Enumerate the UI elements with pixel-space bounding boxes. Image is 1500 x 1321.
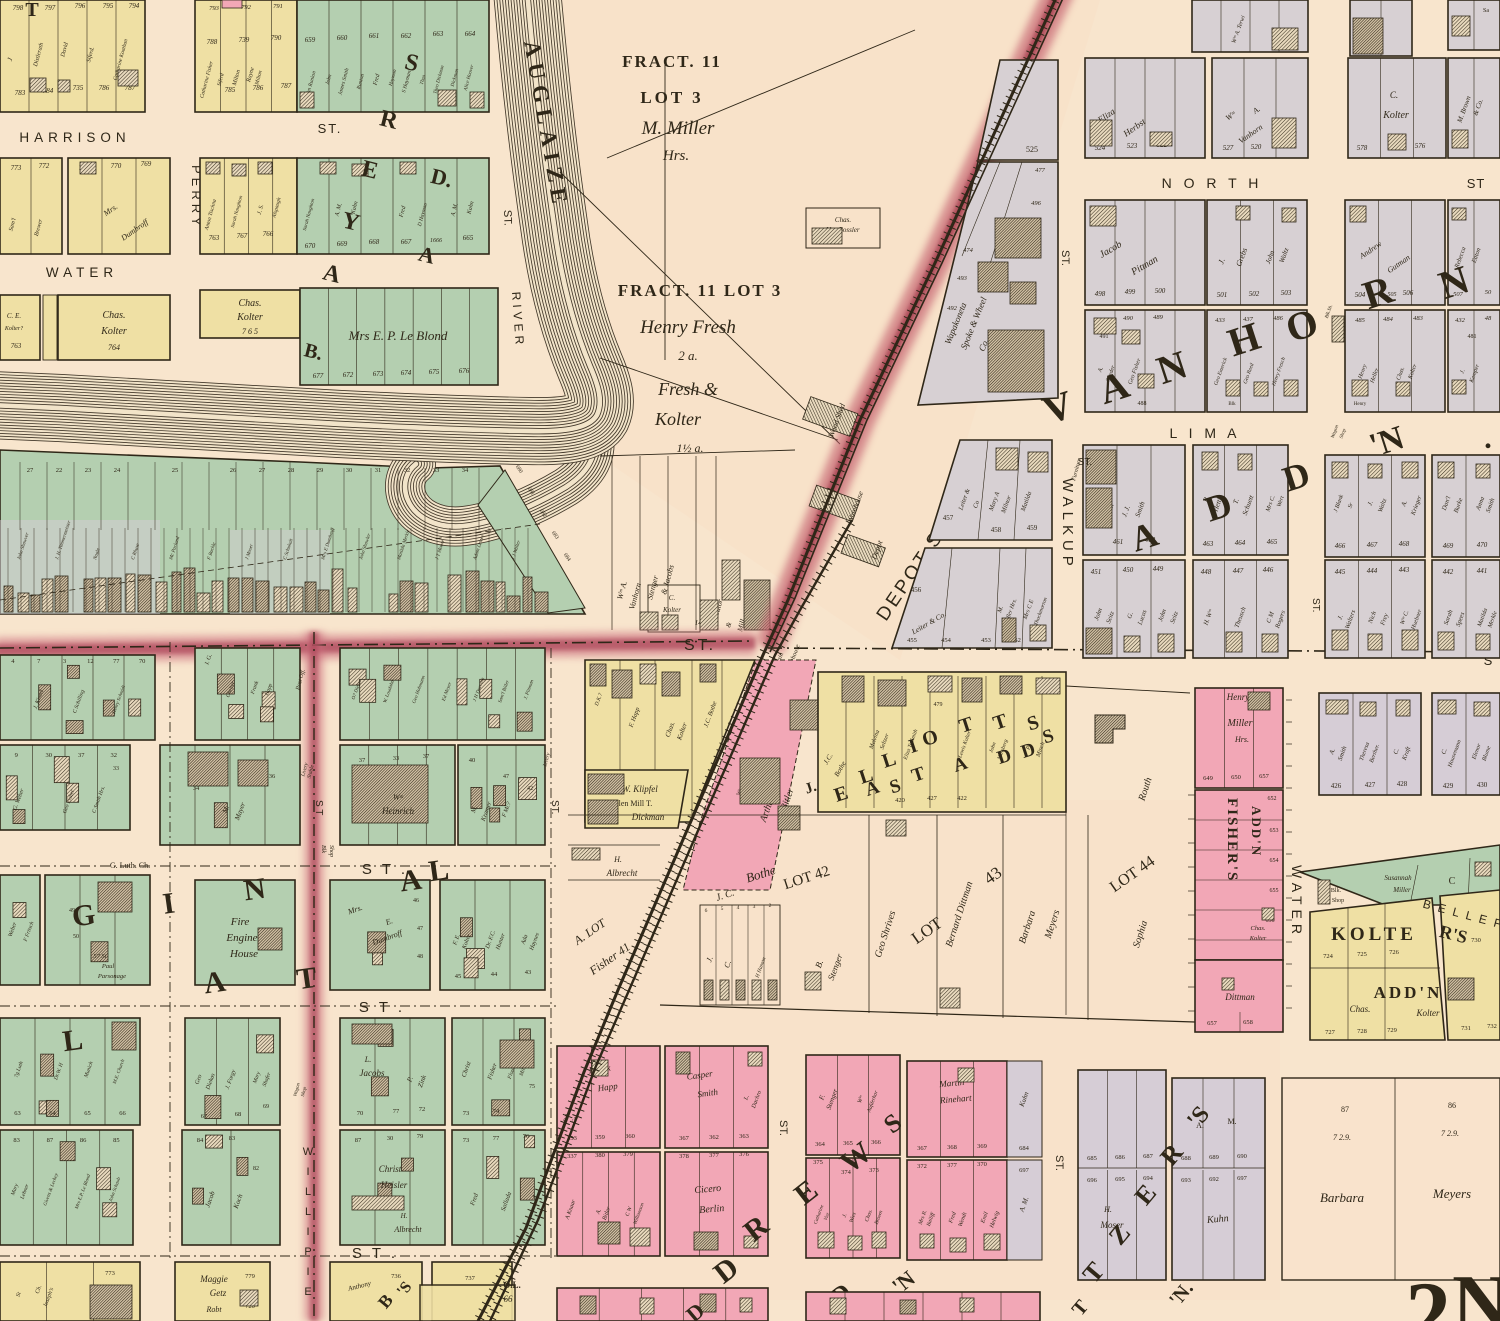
svg-text:Getz: Getz xyxy=(210,1288,227,1298)
svg-text:380: 380 xyxy=(595,1152,605,1159)
svg-text:484: 484 xyxy=(1383,316,1394,323)
svg-text:House: House xyxy=(229,948,258,960)
svg-text:36: 36 xyxy=(269,773,276,780)
svg-text:2: 2 xyxy=(1405,1263,1451,1321)
svg-text:Meyers: Meyers xyxy=(1432,1186,1471,1201)
svg-text:483: 483 xyxy=(1413,315,1424,322)
svg-text:Henry: Henry xyxy=(1354,402,1367,407)
svg-text:ST.: ST. xyxy=(501,210,514,226)
svg-text:24: 24 xyxy=(114,467,121,474)
svg-text:Kolter: Kolter xyxy=(654,409,702,429)
svg-text:454: 454 xyxy=(941,637,952,644)
svg-text:663: 663 xyxy=(433,30,444,38)
svg-text:Miller: Miller xyxy=(1392,886,1411,894)
svg-text:655: 655 xyxy=(1270,888,1279,894)
svg-text:Berlin: Berlin xyxy=(699,1203,725,1216)
svg-text:LOT 3: LOT 3 xyxy=(640,88,703,107)
svg-text:377: 377 xyxy=(947,1162,958,1169)
svg-text:KOLTE: KOLTE xyxy=(1331,924,1417,945)
svg-text:Kolter: Kolter xyxy=(1249,935,1267,942)
svg-text:40: 40 xyxy=(469,757,476,764)
svg-text:378: 378 xyxy=(679,1153,689,1160)
svg-text:46: 46 xyxy=(413,898,419,904)
svg-text:474: 474 xyxy=(963,247,974,254)
svg-text:785: 785 xyxy=(225,86,236,94)
svg-text:447: 447 xyxy=(1233,567,1244,575)
svg-text:Blk: Blk xyxy=(1228,402,1236,407)
svg-text:86: 86 xyxy=(80,1137,87,1144)
svg-text:793: 793 xyxy=(209,5,220,12)
svg-text:737: 737 xyxy=(465,1275,476,1282)
svg-text:697: 697 xyxy=(1019,1167,1030,1174)
svg-text:489: 489 xyxy=(1153,314,1164,321)
svg-text:37: 37 xyxy=(78,752,85,759)
svg-text:694: 694 xyxy=(1143,1175,1154,1182)
svg-text:M.: M. xyxy=(1227,1117,1236,1126)
svg-text:Kolter: Kolter xyxy=(1415,1008,1439,1018)
svg-text:6: 6 xyxy=(705,908,708,914)
svg-text:Fresh &: Fresh & xyxy=(657,379,718,399)
svg-text:Kolter: Kolter xyxy=(100,326,127,337)
svg-text:5: 5 xyxy=(721,906,724,912)
svg-text:726: 726 xyxy=(1389,949,1400,956)
svg-text:479: 479 xyxy=(934,702,943,708)
svg-text:Heinrich: Heinrich xyxy=(381,806,414,816)
svg-text:525: 525 xyxy=(1026,145,1038,154)
svg-text:ST.: ST. xyxy=(684,637,716,654)
svg-text:30: 30 xyxy=(346,467,353,474)
svg-text:.: . xyxy=(1484,422,1492,455)
svg-text:661: 661 xyxy=(369,32,380,40)
svg-text:450: 450 xyxy=(1123,566,1134,574)
svg-text:675: 675 xyxy=(429,368,440,376)
svg-text:S T: S T xyxy=(313,800,324,815)
svg-text:653: 653 xyxy=(1270,828,1279,834)
svg-text:7 2.9.: 7 2.9. xyxy=(1333,1133,1351,1142)
svg-text:65: 65 xyxy=(84,1110,91,1117)
svg-text:491: 491 xyxy=(1100,334,1109,340)
svg-text:N O R T H: N O R T H xyxy=(1162,175,1263,191)
svg-text:Chas.: Chas. xyxy=(1350,1004,1371,1014)
svg-text:461: 461 xyxy=(1113,538,1124,546)
svg-text:427: 427 xyxy=(1365,781,1376,789)
svg-text:467: 467 xyxy=(1367,541,1378,549)
svg-text:Kolter: Kolter xyxy=(1382,110,1409,121)
svg-text:660: 660 xyxy=(337,34,348,42)
svg-text:7 2.9.: 7 2.9. xyxy=(1441,1129,1459,1138)
svg-text:ST: ST xyxy=(1467,176,1486,191)
svg-text:576: 576 xyxy=(1415,142,1426,150)
svg-text:67: 67 xyxy=(201,1113,208,1120)
svg-text:33: 33 xyxy=(433,467,440,474)
svg-text:527: 527 xyxy=(1223,144,1234,152)
svg-text:696: 696 xyxy=(1087,1177,1098,1184)
svg-text:L.: L. xyxy=(364,1055,371,1064)
svg-text:493: 493 xyxy=(957,275,968,282)
svg-text:649: 649 xyxy=(1203,775,1213,782)
svg-text:Blk.: Blk. xyxy=(1331,888,1342,894)
svg-text:724: 724 xyxy=(1323,953,1334,960)
svg-text:727: 727 xyxy=(1325,1029,1336,1036)
svg-text:684: 684 xyxy=(1019,1145,1030,1152)
svg-text:481: 481 xyxy=(1468,334,1477,340)
svg-text:30: 30 xyxy=(46,752,53,759)
svg-text:Kuhn: Kuhn xyxy=(1206,1213,1230,1226)
svg-text:364: 364 xyxy=(815,1141,826,1148)
svg-text:74: 74 xyxy=(493,1108,500,1115)
svg-text:83: 83 xyxy=(229,1135,236,1142)
svg-text:453: 453 xyxy=(981,637,991,644)
svg-text:Susannah: Susannah xyxy=(1384,874,1412,882)
svg-text:47: 47 xyxy=(417,926,423,932)
svg-text:G. Luth. Ch.: G. Luth. Ch. xyxy=(110,861,150,870)
svg-text:730: 730 xyxy=(1471,937,1481,944)
svg-text:670: 670 xyxy=(305,242,316,250)
svg-text:772: 772 xyxy=(39,162,50,170)
svg-text:687: 687 xyxy=(1143,1153,1154,1160)
svg-text:496: 496 xyxy=(1031,200,1042,207)
svg-text:77: 77 xyxy=(393,1108,400,1115)
svg-text:787: 787 xyxy=(281,82,292,90)
svg-text:442: 442 xyxy=(1443,568,1454,576)
svg-text:E: E xyxy=(304,1286,311,1298)
svg-text:87: 87 xyxy=(47,1137,54,1144)
svg-text:64: 64 xyxy=(49,1110,56,1117)
svg-text:422: 422 xyxy=(957,795,967,802)
svg-text:Robt: Robt xyxy=(205,1305,222,1314)
svg-text:735: 735 xyxy=(73,84,84,92)
svg-text:658: 658 xyxy=(1243,1019,1253,1026)
svg-text:C: C xyxy=(1449,876,1456,887)
svg-text:69: 69 xyxy=(263,1104,269,1110)
svg-text:48: 48 xyxy=(1485,315,1492,322)
svg-text:Henry: Henry xyxy=(1226,692,1250,702)
svg-text:798: 798 xyxy=(13,4,24,12)
svg-text:429: 429 xyxy=(1443,782,1454,790)
svg-text:H.: H. xyxy=(1103,1205,1112,1214)
svg-text:Cicero: Cicero xyxy=(694,1183,722,1196)
svg-text:47: 47 xyxy=(503,774,509,780)
svg-text:657: 657 xyxy=(1259,773,1270,780)
svg-text:H.: H. xyxy=(400,1212,408,1220)
svg-text:669: 669 xyxy=(337,240,348,248)
svg-text:87: 87 xyxy=(1341,1105,1349,1114)
svg-text:32: 32 xyxy=(111,752,118,759)
svg-text:12: 12 xyxy=(87,658,94,665)
svg-text:ADD'N: ADD'N xyxy=(1249,806,1264,857)
svg-text:Blk: Blk xyxy=(320,845,326,853)
svg-text:45: 45 xyxy=(455,973,462,980)
svg-text:463: 463 xyxy=(1203,540,1214,548)
svg-text:725: 725 xyxy=(1357,951,1367,958)
svg-text:2 a.: 2 a. xyxy=(678,348,698,363)
svg-text:23: 23 xyxy=(85,467,92,474)
svg-text:797: 797 xyxy=(45,4,56,12)
svg-text:444: 444 xyxy=(1367,567,1378,575)
svg-text:Sa: Sa xyxy=(1483,8,1489,14)
svg-text:27: 27 xyxy=(259,467,266,474)
svg-text:70: 70 xyxy=(139,658,146,665)
svg-text:668: 668 xyxy=(369,238,380,246)
svg-text:Hrs.: Hrs. xyxy=(1234,735,1249,744)
svg-text:690: 690 xyxy=(1237,1153,1247,1160)
svg-text:Hrs.: Hrs. xyxy=(662,148,689,164)
svg-text:ST.: ST. xyxy=(1078,457,1092,468)
svg-text:Chas.: Chas. xyxy=(238,298,261,309)
svg-text:Dickman: Dickman xyxy=(631,812,665,822)
svg-text:697: 697 xyxy=(1237,1175,1248,1182)
svg-text:732: 732 xyxy=(1487,1023,1497,1030)
svg-text:779: 779 xyxy=(245,1273,255,1280)
svg-text:WALKUP: WALKUP xyxy=(1059,478,1076,571)
svg-text:26: 26 xyxy=(230,467,237,474)
svg-text:C. E.: C. E. xyxy=(7,312,21,320)
svg-text:662: 662 xyxy=(401,32,412,40)
svg-text:488: 488 xyxy=(1138,401,1147,407)
svg-text:73: 73 xyxy=(463,1110,470,1117)
svg-text:692: 692 xyxy=(1209,1176,1219,1183)
svg-text:773: 773 xyxy=(11,164,22,172)
svg-text:4: 4 xyxy=(737,905,740,911)
svg-text:466: 466 xyxy=(1335,542,1346,550)
svg-text:443: 443 xyxy=(1399,566,1410,574)
svg-text:Chas.: Chas. xyxy=(102,310,125,321)
svg-text:788: 788 xyxy=(207,38,218,46)
svg-text:430: 430 xyxy=(1477,781,1488,789)
svg-text:695: 695 xyxy=(1115,1176,1125,1183)
svg-text:Parsonage: Parsonage xyxy=(97,973,126,980)
svg-text:Miller: Miller xyxy=(1227,718,1253,729)
svg-text:37: 37 xyxy=(423,753,430,760)
svg-text:464: 464 xyxy=(1235,539,1246,547)
svg-text:84: 84 xyxy=(197,1137,204,1144)
svg-text:736: 736 xyxy=(391,1273,402,1280)
svg-text:368: 368 xyxy=(947,1144,957,1151)
svg-text:Henry Fresh: Henry Fresh xyxy=(639,317,736,338)
svg-text:Wᵐ: Wᵐ xyxy=(393,793,404,802)
svg-text:Kolter?: Kolter? xyxy=(4,326,23,332)
svg-text:523: 523 xyxy=(1127,142,1138,150)
svg-text:Albrecht: Albrecht xyxy=(393,1225,422,1234)
svg-text:506: 506 xyxy=(1403,289,1414,297)
svg-text:763: 763 xyxy=(209,234,220,242)
svg-text:C.: C. xyxy=(669,594,676,602)
svg-text:Fire: Fire xyxy=(230,916,250,928)
svg-text:459: 459 xyxy=(1027,524,1038,532)
svg-text:469: 469 xyxy=(1443,542,1454,550)
svg-text:73: 73 xyxy=(463,1137,470,1144)
svg-text:674: 674 xyxy=(401,369,412,377)
svg-text:H.: H. xyxy=(613,855,622,864)
svg-text:50: 50 xyxy=(1485,289,1492,296)
svg-text:377: 377 xyxy=(709,1152,720,1159)
svg-text:7 6 5: 7 6 5 xyxy=(242,327,258,336)
svg-text:477: 477 xyxy=(1035,167,1046,174)
svg-text:Kolter: Kolter xyxy=(236,312,263,323)
svg-text:W: W xyxy=(303,1146,314,1158)
svg-text:Barbara: Barbara xyxy=(1320,1190,1365,1205)
svg-text:Jacobs: Jacobs xyxy=(360,1068,385,1078)
svg-text:455: 455 xyxy=(907,637,917,644)
svg-text:783: 783 xyxy=(15,89,26,97)
svg-text:379: 379 xyxy=(623,1151,633,1158)
svg-text:786: 786 xyxy=(99,84,110,92)
svg-text:Engine: Engine xyxy=(225,932,257,944)
svg-text:689: 689 xyxy=(1209,1154,1219,1161)
svg-text:85: 85 xyxy=(113,1137,120,1144)
svg-text:502: 502 xyxy=(1249,290,1260,298)
svg-text:I: I xyxy=(306,1226,309,1238)
svg-text:ST.: ST. xyxy=(1059,250,1071,266)
svg-text:29: 29 xyxy=(317,467,324,474)
svg-text:33: 33 xyxy=(393,755,400,762)
svg-text:HARRISON: HARRISON xyxy=(19,130,130,145)
svg-text:79: 79 xyxy=(417,1133,424,1140)
svg-text:766: 766 xyxy=(263,230,274,238)
svg-text:667: 667 xyxy=(401,238,412,246)
svg-text:664: 664 xyxy=(465,30,476,38)
svg-text:337: 337 xyxy=(567,1153,578,1160)
svg-text:S T .: S T . xyxy=(352,1245,398,1262)
svg-text:Maggie: Maggie xyxy=(199,1274,228,1284)
svg-text:Albrecht: Albrecht xyxy=(606,868,638,878)
svg-text:Chas.: Chas. xyxy=(835,216,851,224)
svg-text:654: 654 xyxy=(1270,858,1279,864)
svg-text:363: 363 xyxy=(739,1133,749,1140)
svg-text:652: 652 xyxy=(1268,796,1277,802)
svg-text:693: 693 xyxy=(1181,1177,1191,1184)
svg-text:L I M A: L I M A xyxy=(1169,425,1240,441)
svg-text:676: 676 xyxy=(459,367,470,375)
svg-text:427: 427 xyxy=(927,795,938,802)
svg-text:650: 650 xyxy=(1231,774,1241,781)
svg-text:28: 28 xyxy=(288,467,295,474)
svg-text:Paul: Paul xyxy=(101,963,114,970)
svg-text:37: 37 xyxy=(359,757,366,764)
svg-text:50: 50 xyxy=(73,934,79,940)
svg-text:T: T xyxy=(25,0,39,21)
svg-text:Dittman: Dittman xyxy=(1224,992,1255,1002)
svg-text:360: 360 xyxy=(625,1133,635,1140)
svg-text:370: 370 xyxy=(977,1161,987,1168)
svg-text:672: 672 xyxy=(343,371,354,379)
svg-text:729: 729 xyxy=(1387,1027,1397,1034)
svg-text:362: 362 xyxy=(709,1134,719,1141)
svg-text:359: 359 xyxy=(595,1134,605,1141)
svg-text:25: 25 xyxy=(172,467,179,474)
svg-text:Mrs E. P. Le Blond: Mrs E. P. Le Blond xyxy=(348,328,448,343)
svg-text:Heisler: Heisler xyxy=(380,1180,408,1190)
svg-text:485: 485 xyxy=(1355,317,1366,324)
svg-text:66: 66 xyxy=(119,1110,126,1117)
svg-text:769: 769 xyxy=(141,160,152,168)
svg-text:L: L xyxy=(305,1186,311,1198)
svg-text:428: 428 xyxy=(1397,780,1408,788)
svg-text:500: 500 xyxy=(1155,287,1166,295)
svg-text:366: 366 xyxy=(871,1139,882,1146)
svg-text:795: 795 xyxy=(103,2,114,10)
svg-text:686: 686 xyxy=(1115,1154,1126,1161)
svg-text:I: I xyxy=(306,1266,309,1278)
svg-text:685: 685 xyxy=(1087,1155,1097,1162)
svg-text:57 St: 57 St xyxy=(93,953,106,960)
svg-text:501: 501 xyxy=(1217,291,1228,299)
svg-text:790: 790 xyxy=(271,34,282,42)
svg-text:764: 764 xyxy=(108,343,120,352)
svg-text:44: 44 xyxy=(491,971,498,978)
svg-text:426: 426 xyxy=(1331,782,1342,790)
svg-text:369: 369 xyxy=(977,1143,987,1150)
svg-text:43: 43 xyxy=(525,969,532,976)
svg-text:42: 42 xyxy=(527,786,533,792)
svg-text:FRACT. 11 LOT 3: FRACT. 11 LOT 3 xyxy=(618,281,782,300)
svg-text:48: 48 xyxy=(417,954,423,960)
svg-text:2: 2 xyxy=(769,903,772,909)
svg-text:420: 420 xyxy=(895,797,905,804)
svg-text:665: 665 xyxy=(463,234,474,242)
svg-text:83: 83 xyxy=(13,1137,20,1144)
svg-text:657: 657 xyxy=(1207,1020,1218,1027)
svg-text:75: 75 xyxy=(529,1084,535,1090)
svg-text:Shop: Shop xyxy=(328,845,334,857)
svg-text:Kolter: Kolter xyxy=(662,606,681,614)
svg-text:ST.: ST. xyxy=(1053,1155,1065,1171)
svg-text:367: 367 xyxy=(679,1135,690,1142)
svg-text:458: 458 xyxy=(991,526,1002,534)
svg-text:367: 367 xyxy=(917,1145,928,1152)
svg-text:82: 82 xyxy=(253,1166,259,1172)
svg-text:468: 468 xyxy=(1399,540,1410,548)
svg-text:C.: C. xyxy=(1390,90,1398,100)
svg-text:739: 739 xyxy=(239,36,250,44)
svg-text:446: 446 xyxy=(1263,566,1274,574)
svg-text:3: 3 xyxy=(753,904,756,910)
svg-text:34: 34 xyxy=(462,467,469,474)
svg-text:457: 457 xyxy=(943,514,954,522)
svg-text:792: 792 xyxy=(241,4,252,11)
svg-text:ST.: ST. xyxy=(1310,598,1321,612)
svg-text:673: 673 xyxy=(373,370,384,378)
svg-text:445: 445 xyxy=(1335,568,1346,576)
svg-text:68: 68 xyxy=(235,1111,242,1118)
svg-text:375: 375 xyxy=(813,1159,823,1166)
svg-text:FISHER'S: FISHER'S xyxy=(1224,798,1240,882)
svg-text:G: G xyxy=(70,898,98,934)
svg-text:Shop: Shop xyxy=(1332,898,1344,904)
svg-text:448: 448 xyxy=(1201,568,1212,576)
svg-text:796: 796 xyxy=(75,2,86,10)
svg-text:ST.: ST. xyxy=(318,121,343,136)
svg-text:503: 503 xyxy=(1281,289,1292,297)
svg-text:76: 76 xyxy=(523,1133,530,1140)
svg-text:470: 470 xyxy=(1477,541,1488,549)
svg-text:32: 32 xyxy=(404,467,411,474)
svg-text:498: 498 xyxy=(1095,290,1106,298)
svg-text:451: 451 xyxy=(1091,568,1102,576)
svg-text:WATER: WATER xyxy=(46,265,118,280)
svg-text:372: 372 xyxy=(917,1163,927,1170)
svg-text:27: 27 xyxy=(27,467,34,474)
svg-text:449: 449 xyxy=(1153,565,1164,573)
svg-text:791: 791 xyxy=(273,3,283,10)
svg-text:728: 728 xyxy=(1357,1028,1367,1035)
svg-text:N: N xyxy=(1452,1260,1500,1321)
svg-text:773: 773 xyxy=(105,1270,115,1277)
svg-text:432: 432 xyxy=(1455,317,1466,324)
svg-text:S T .: S T . xyxy=(359,999,405,1016)
svg-text:9: 9 xyxy=(15,752,18,759)
svg-text:456: 456 xyxy=(911,586,922,594)
